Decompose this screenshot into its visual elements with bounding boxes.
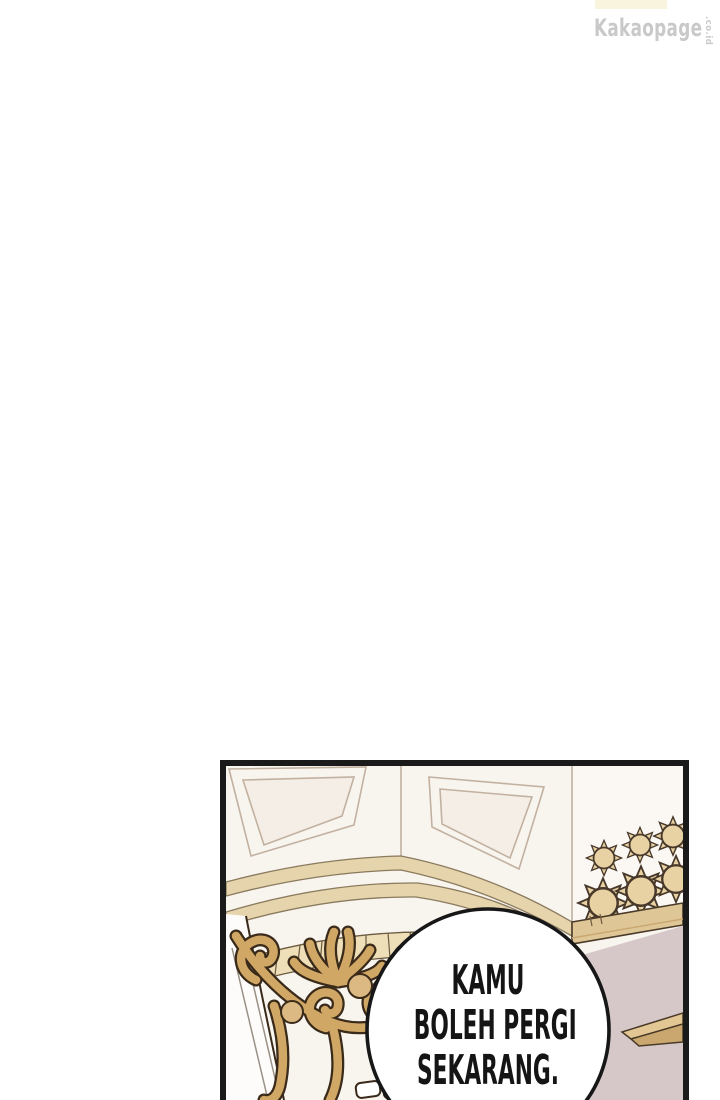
speech-line: SEKARANG.	[414, 1048, 562, 1093]
gold-finial-ball	[281, 1001, 303, 1023]
gold-finial-ball	[348, 974, 372, 998]
comic-page: { "page": { "width": 720, "height": 1100…	[0, 0, 720, 1100]
watermark-banner	[595, 0, 667, 9]
watermark-suffix: .co.id	[703, 16, 713, 45]
sun-ornament-icon	[586, 840, 621, 875]
speech-bubble-text: KAMU BOLEH PERGI SEKARANG.	[414, 958, 562, 1093]
speech-line: BOLEH PERGI	[414, 1003, 562, 1048]
sun-ornament-icon	[622, 827, 657, 862]
speech-line: KAMU	[414, 958, 562, 1003]
wall-panel-left	[229, 767, 366, 856]
sun-wall	[572, 766, 683, 928]
wall-panel-middle	[429, 777, 544, 869]
watermark-brand: Kakaopage	[594, 14, 702, 42]
